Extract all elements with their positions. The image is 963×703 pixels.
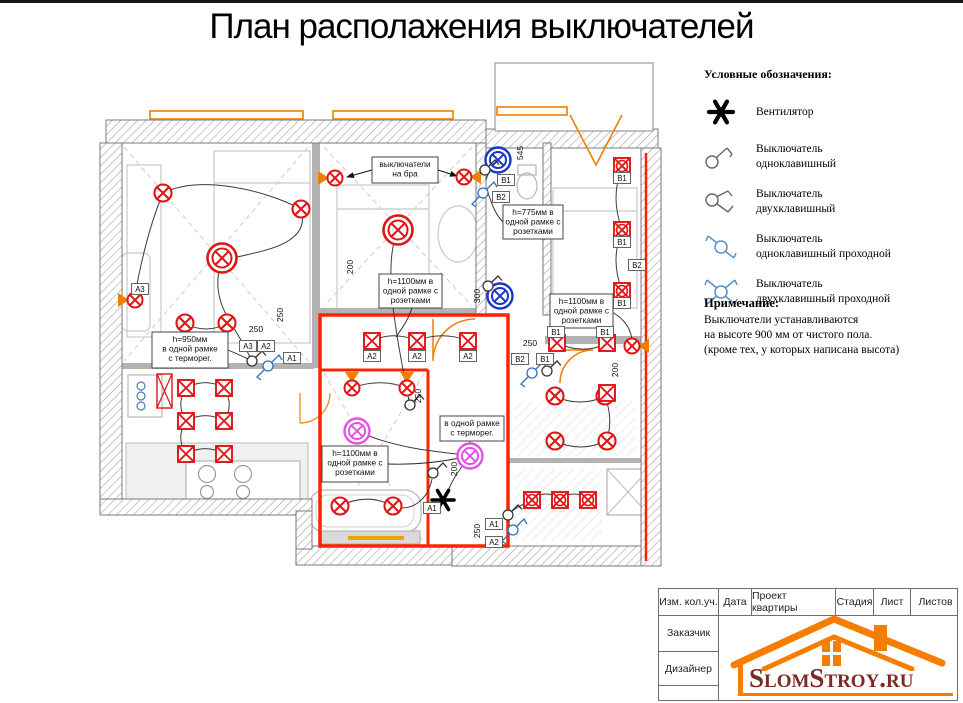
- inner-wall: [508, 458, 641, 463]
- group-tag: A1: [284, 353, 301, 364]
- accent-light-magenta-inner: [349, 423, 365, 439]
- note-heading: Примечание:: [704, 296, 956, 311]
- leader-arrow: [438, 170, 457, 176]
- balcony: [495, 63, 653, 131]
- callout: выключателина бра: [372, 157, 438, 183]
- sconce-light: [345, 381, 360, 396]
- spot-light-icon: [178, 446, 194, 462]
- callout-text: в одной рамкес терморег.: [444, 418, 500, 438]
- switch-pass-icon: [521, 362, 546, 387]
- tag-text: A2: [489, 538, 499, 547]
- sconce-light: [457, 170, 472, 185]
- callout-text: h=775мм водной рамке срозетками: [505, 207, 560, 236]
- switch-lever: [492, 276, 503, 283]
- logo-text-frame: SlomStroy.ru: [738, 663, 953, 696]
- switch-double-icon: [704, 186, 756, 218]
- dimension-label: 250: [472, 524, 482, 538]
- door-arc: [560, 350, 593, 383]
- wall: [641, 148, 661, 566]
- group-tag: B1: [614, 237, 631, 248]
- legend-item-label: Выключатель одноклавишный проходной: [756, 232, 891, 262]
- tag-text: B1: [617, 238, 627, 247]
- tag-text: B2: [496, 193, 506, 202]
- tag-text: A2: [261, 342, 271, 351]
- page-title: План располажения выключателей: [0, 7, 963, 47]
- tag-text: B1: [617, 174, 627, 183]
- legend-heading: Условные обозначения:: [704, 67, 956, 82]
- wall: [486, 129, 658, 148]
- logo-text: SlomStroy.ru: [749, 663, 914, 693]
- ceiling-light-icon: [155, 185, 172, 202]
- dimension-label: 200: [610, 363, 620, 377]
- tag-text: A2: [412, 352, 422, 361]
- switch-lever: [437, 463, 448, 470]
- group-tag: B2: [629, 260, 646, 271]
- callout: в одной рамкес терморег.: [440, 416, 504, 441]
- title-block-header-row: Изм. кол.уч.ДатаПроект квартирыСтадияЛис…: [659, 589, 957, 616]
- window: [497, 107, 567, 115]
- group-tag: B1: [614, 173, 631, 184]
- spot-light-icon: [216, 380, 232, 396]
- tag-text: A2: [367, 352, 377, 361]
- wall: [100, 499, 312, 515]
- accent-light-magenta-inner: [462, 448, 478, 464]
- title-block-side-cell: Заказчик: [659, 615, 718, 652]
- group-tag: B1: [548, 327, 565, 338]
- legend-item: Выключатель одноклавишный проходной: [704, 231, 956, 263]
- accent-light-magenta-icon: [458, 444, 483, 469]
- callout-text: h=1100мм водной рамке срозетками: [327, 448, 382, 477]
- title-block-cell: Лист: [874, 589, 911, 615]
- sconce-light: [625, 339, 640, 354]
- tag-text: B2: [632, 261, 642, 270]
- dimension-label: 200: [345, 260, 355, 274]
- tag-text: A3: [243, 342, 253, 351]
- dimension-label: 200: [449, 462, 459, 476]
- title-block-side-column: ЗаказчикДизайнер: [659, 615, 719, 700]
- wire: [228, 209, 303, 259]
- spot-light-round-icon: [552, 492, 568, 508]
- window: [150, 111, 303, 119]
- wall-sconce-icon: [318, 171, 343, 186]
- wall: [100, 143, 122, 511]
- callout-text: h=1100мм водной рамке срозетками: [554, 296, 609, 325]
- dimension-label: 545: [515, 146, 525, 160]
- spot-light-round-icon: [614, 283, 630, 299]
- group-tag: A2: [486, 537, 503, 548]
- tag-text: B1: [600, 328, 610, 337]
- group-tag: B1: [498, 175, 515, 186]
- tag-text: B2: [515, 355, 525, 364]
- group-tag: B1: [597, 327, 614, 338]
- switch-lever: [256, 351, 267, 358]
- spot-light-icon: [599, 385, 615, 401]
- switch-single-icon: [428, 463, 447, 478]
- note: Примечание: Выключатели устанавливаются …: [704, 296, 956, 359]
- tag-text: A3: [135, 285, 145, 294]
- wall: [296, 546, 464, 565]
- door-arc: [300, 393, 330, 423]
- bathtub: [309, 490, 421, 532]
- window: [333, 111, 453, 119]
- floor-hatch: [514, 401, 636, 457]
- ceiling-light-icon: [385, 498, 402, 515]
- group-tag: B2: [493, 192, 510, 203]
- tag-text: A2: [463, 352, 473, 361]
- ceiling-light-icon: [293, 201, 310, 218]
- tag-text: B1: [540, 355, 550, 364]
- ceiling-light-icon: [219, 315, 236, 332]
- spot-light-icon: [178, 413, 194, 429]
- group-tag: A2: [409, 351, 426, 362]
- wet-light-blue-inner: [490, 152, 506, 168]
- spot-light-round-icon: [524, 492, 540, 508]
- spot-light-round-icon: [614, 222, 630, 238]
- tag-text: B1: [617, 299, 627, 308]
- ceiling-light-icon: [599, 433, 616, 450]
- ceiling-light-icon: [177, 315, 194, 332]
- spot-light-icon: [460, 333, 476, 349]
- ceiling-light-large-inner: [213, 249, 232, 268]
- dimension-label: 300: [472, 289, 482, 303]
- wall-sconce-icon: [345, 372, 360, 396]
- logo: SlomStroy.ru: [718, 615, 957, 700]
- group-tag: B2: [512, 354, 529, 365]
- group-tag: A3: [240, 341, 257, 352]
- wire: [135, 193, 163, 295]
- group-tag: A2: [258, 341, 275, 352]
- dimension-label: 250: [413, 389, 423, 403]
- group-tag: A1: [486, 519, 503, 530]
- ceiling-light-large-inner: [389, 221, 408, 240]
- spot-light-icon: [364, 333, 380, 349]
- group-tag: A3: [132, 284, 149, 295]
- tag-text: A1: [287, 354, 297, 363]
- accent-light-magenta-icon: [345, 419, 370, 444]
- legend-item-label: Вентилятор: [756, 105, 814, 120]
- callout: h=775мм водной рамке срозетками: [503, 205, 563, 239]
- ceiling-light-icon: [332, 498, 349, 515]
- drawing-sheet: План располажения выключателей выключате…: [0, 0, 963, 703]
- chair: [438, 206, 478, 262]
- legend-item-label: Выключатель двухклавишный: [756, 187, 835, 217]
- title-block-cell: Дата: [719, 589, 752, 615]
- ceiling-light-icon: [547, 433, 564, 450]
- title-block-cell: Изм. кол.уч.: [659, 589, 719, 615]
- legend-item: Выключатель двухклавишный: [704, 186, 956, 218]
- toilet: [517, 173, 537, 199]
- legend-items: ВентиляторВыключатель одноклавишныйВыклю…: [704, 96, 956, 308]
- dimension-label: 250: [249, 324, 263, 334]
- tag-text: B1: [551, 328, 561, 337]
- legend-item: Вентилятор: [704, 96, 956, 128]
- spot-light-icon: [216, 446, 232, 462]
- dimension-label: 250: [275, 308, 285, 322]
- floor-plan: выключателина браh=775мм водной рамке ср…: [95, 53, 670, 578]
- sconce-light: [328, 171, 343, 186]
- tag-text: A1: [427, 504, 437, 513]
- title-block-cell: Проект квартиры: [752, 589, 836, 615]
- legend-item-label: Выключатель одноклавишный: [756, 142, 836, 172]
- legend: Условные обозначения: ВентиляторВыключат…: [704, 67, 956, 321]
- wire: [163, 185, 301, 209]
- spot-light-round-icon: [580, 492, 596, 508]
- title-block-cell: Листов: [911, 589, 960, 615]
- wet-light-blue-inner: [492, 288, 508, 304]
- callout-text: h=1100мм водной рамке срозетками: [383, 276, 438, 305]
- callout: h=1100мм водной рамке срозетками: [379, 274, 442, 308]
- fan-icon: [704, 96, 756, 128]
- tag-text: A1: [489, 520, 499, 529]
- tag-text: B1: [501, 176, 511, 185]
- group-tag: A2: [460, 351, 477, 362]
- dimension-label: 250: [523, 338, 537, 348]
- spot-light-round-icon: [614, 158, 630, 174]
- wall: [452, 546, 658, 566]
- note-text: Выключатели устанавливаются на высоте 90…: [704, 313, 956, 359]
- legend-item: Выключатель одноклавишный: [704, 141, 956, 173]
- title-block-side-cell: Дизайнер: [659, 652, 718, 686]
- title-block-side-cell: [659, 686, 718, 700]
- switch-single-icon: [704, 141, 756, 173]
- group-tag: A2: [364, 351, 381, 362]
- towel-heater: [348, 536, 404, 540]
- callout: h=950ммв одной рамкес терморег.: [152, 332, 228, 368]
- spot-light-icon: [216, 413, 232, 429]
- ceiling-light-large-icon: [208, 244, 237, 273]
- ceiling-light-large-icon: [384, 216, 413, 245]
- wall: [106, 120, 486, 143]
- ceiling-light-icon: [547, 388, 564, 405]
- title-block-cell: Стадия: [836, 589, 874, 615]
- spot-light-icon: [178, 380, 194, 396]
- switch-single-pass-icon: [704, 231, 756, 263]
- callout: h=1100мм водной рамке срозетками: [322, 446, 388, 482]
- group-tag: B1: [614, 298, 631, 309]
- group-tag: B1: [537, 354, 554, 365]
- title-block: Изм. кол.уч.ДатаПроект квартирыСтадияЛис…: [658, 588, 958, 701]
- wall: [296, 511, 312, 549]
- leader-arrow: [347, 170, 372, 177]
- spot-light-icon: [409, 333, 425, 349]
- callout: h=1100мм водной рамке срозетками: [550, 294, 613, 328]
- group-tag: A1: [424, 503, 441, 514]
